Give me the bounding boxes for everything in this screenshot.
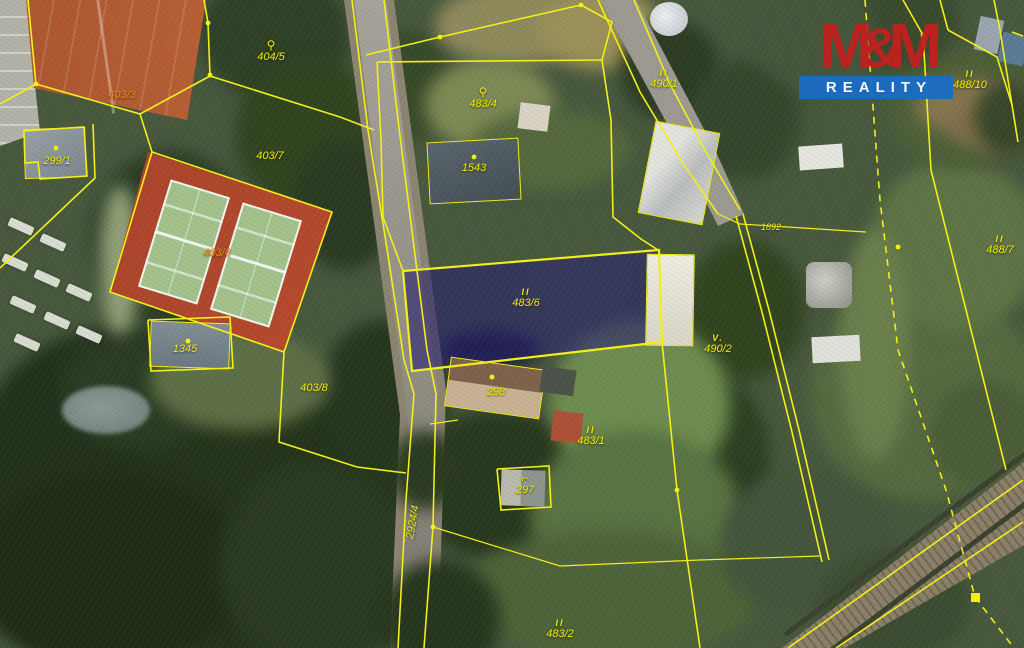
parcel-number: 490/2 <box>704 343 732 355</box>
parcel-number: 403/7 <box>256 150 284 162</box>
logo-m-right: M <box>888 12 933 81</box>
parcel-number: 1892 <box>761 222 781 232</box>
parcel-label-490-2: V.490/2 <box>704 333 732 355</box>
parcel-label-2924-4: 2924/4 <box>404 504 422 539</box>
land-use-symbol: II <box>577 425 605 435</box>
parcel-number: 404/5 <box>257 51 285 63</box>
parcel-number: 483/6 <box>512 297 540 309</box>
parcel-label-1345: 1345 <box>173 343 197 355</box>
parcel-label-403-7: 403/7 <box>256 150 284 162</box>
parcel-label-403-3: 403/3 <box>108 89 136 101</box>
circle-map-icon: ⚲ <box>469 88 497 98</box>
parcel-number: 403/8 <box>300 382 328 394</box>
land-use-symbol: V. <box>704 333 732 343</box>
parcel-label-1892: 1892 <box>761 222 781 232</box>
parcel-label-403-6: 403/6 <box>203 247 231 259</box>
parcel-number: 488/10 <box>953 79 987 91</box>
parcel-label-1543: 1543 <box>462 162 486 174</box>
parcel-number: 1345 <box>173 343 197 355</box>
parcel-number: 298 <box>487 386 505 398</box>
land-use-symbol: II <box>546 618 574 628</box>
cadastral-aerial-map: ⚲404/5403/3403/7299/1403/61345403/81543⚲… <box>0 0 1024 648</box>
parcel-label-483-1: II483/1 <box>577 425 605 447</box>
logo-reality-text: REALITY <box>799 76 953 99</box>
parcel-label-299-1: 299/1 <box>43 155 71 167</box>
parcel-number: 488/7 <box>986 244 1014 256</box>
parcel-number: 483/2 <box>546 628 574 640</box>
parcel-label-403-8: 403/8 <box>300 382 328 394</box>
parcel-number: 483/1 <box>577 435 605 447</box>
parcel-label-404-5: ⚲404/5 <box>257 41 285 63</box>
land-use-symbol: II <box>650 68 678 78</box>
parcel-number: 299/1 <box>43 155 71 167</box>
land-use-symbol: II <box>953 69 987 79</box>
parcel-label-483-6: II483/6 <box>512 287 540 309</box>
parcel-label-483-2: II483/2 <box>546 618 574 640</box>
logo-m-left: M <box>819 12 864 81</box>
parcel-number: 483/4 <box>469 98 497 110</box>
land-use-symbol: II <box>986 234 1014 244</box>
parcel-number: 403/6 <box>203 247 231 259</box>
parcel-number: 403/3 <box>108 89 136 101</box>
parcel-number: 490/1 <box>650 78 678 90</box>
parcel-number: 1543 <box>462 162 486 174</box>
parcel-number: 2924/4 <box>404 504 422 539</box>
parcel-label-490-1: II490/1 <box>650 68 678 90</box>
logo-mm-text: M&M <box>795 20 957 75</box>
parcel-label-298: 298 <box>487 386 505 398</box>
mm-reality-logo: M&M REALITY <box>799 20 953 99</box>
parcel-label-297: ⌐297 <box>516 474 534 496</box>
circle-map-icon: ⚲ <box>257 41 285 51</box>
parcel-label-488-10: II488/10 <box>953 69 987 91</box>
parcel-number: 297 <box>516 484 534 496</box>
hook-map-icon: ⌐ <box>516 474 534 484</box>
logo-ampersand: & <box>859 16 892 79</box>
parcel-label-483-4: ⚲483/4 <box>469 88 497 110</box>
parcel-label-488-7: II488/7 <box>986 234 1014 256</box>
land-use-symbol: II <box>512 287 540 297</box>
